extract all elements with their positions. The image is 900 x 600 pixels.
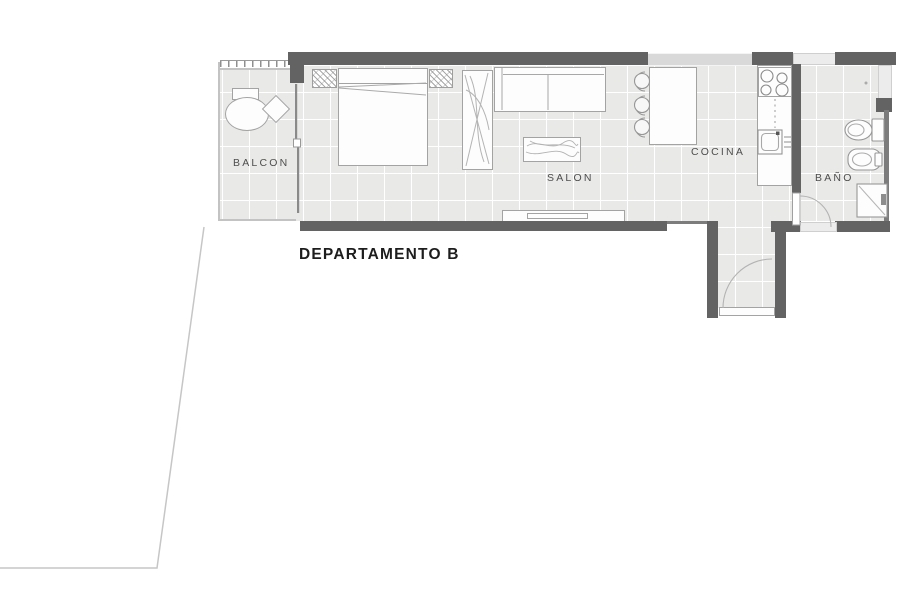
floor-vestibule [718, 221, 775, 308]
balcony-railing [220, 60, 288, 67]
balcony-top-edge [218, 68, 294, 70]
floor-bathroom [801, 65, 884, 221]
wall-right-thin [884, 110, 889, 222]
bathroom-door-threshold [800, 222, 837, 232]
wardrobe [462, 70, 493, 170]
room-label-cocina: COCINA [691, 146, 745, 158]
balcony-round-table [225, 97, 269, 131]
wall-vestibule-right [775, 229, 786, 318]
passage-threshold [667, 221, 707, 224]
stove [758, 67, 792, 97]
nightstand-left [312, 69, 337, 88]
window-bathroom-right [878, 65, 892, 100]
room-label-bano: BAÑO [815, 172, 854, 184]
wall-vestibule-left [707, 221, 718, 318]
nightstand-right [429, 69, 453, 88]
entry-door-leaf [719, 307, 775, 316]
wall-top-kitchen [752, 52, 793, 65]
kitchen-island [649, 67, 697, 145]
wall-salon-bottom [300, 221, 667, 231]
apartment-title: DEPARTAMENTO B [299, 246, 460, 264]
balcony-bottom-edge [218, 219, 296, 221]
room-label-salon: SALON [547, 172, 594, 184]
sofa [494, 67, 606, 112]
wall-stub-left [290, 52, 304, 83]
wall-top-main [288, 52, 648, 65]
floorplan-canvas: BALCON SALON COCINA BAÑO DEPARTAMENTO B [0, 0, 900, 600]
bed [338, 83, 428, 166]
lot-boundary-line [0, 227, 204, 568]
wall-bath-bottom-left [771, 221, 801, 232]
wall-top-right [835, 52, 896, 65]
window-kitchen [648, 53, 752, 66]
room-label-balcon: BALCON [233, 157, 289, 169]
wall-bath-bottom-right [835, 221, 890, 232]
coffee-table-rug [523, 137, 581, 162]
wall-divider-kitchen-bath [792, 64, 801, 193]
balcony-left-edge [218, 62, 220, 221]
tv-screen [527, 213, 588, 219]
